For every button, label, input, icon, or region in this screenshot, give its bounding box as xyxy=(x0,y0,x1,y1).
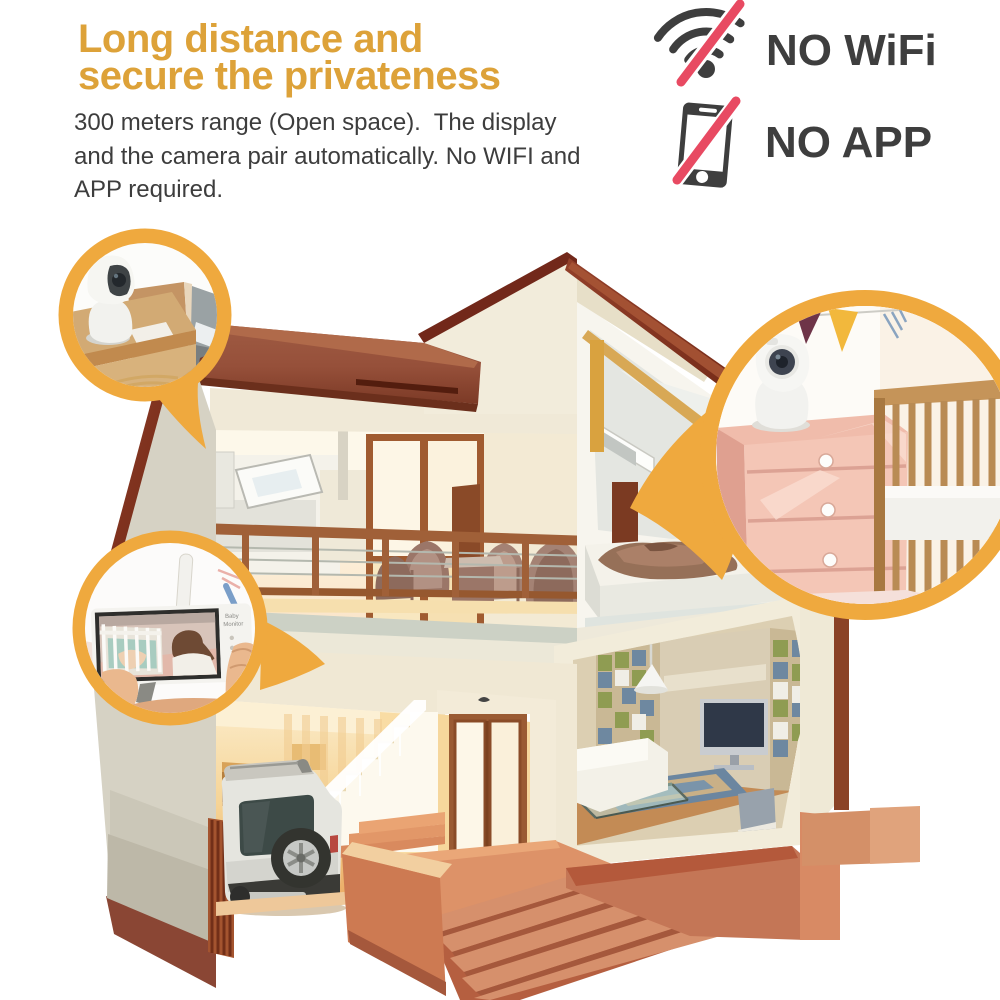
svg-text:and the camera pair automatica: and the camera pair automatically. No WI… xyxy=(74,143,580,170)
svg-text:Baby: Baby xyxy=(225,614,239,620)
svg-text:secure the privateness: secure the privateness xyxy=(78,54,501,98)
svg-text:NO APP: NO APP xyxy=(765,118,932,167)
svg-text:NO WiFi: NO WiFi xyxy=(766,26,937,75)
svg-text:Monitor: Monitor xyxy=(223,621,243,628)
svg-text:300 meters range (Open space).: 300 meters range (Open space). The displ… xyxy=(74,109,556,136)
svg-text:APP required.: APP required. xyxy=(74,176,223,203)
